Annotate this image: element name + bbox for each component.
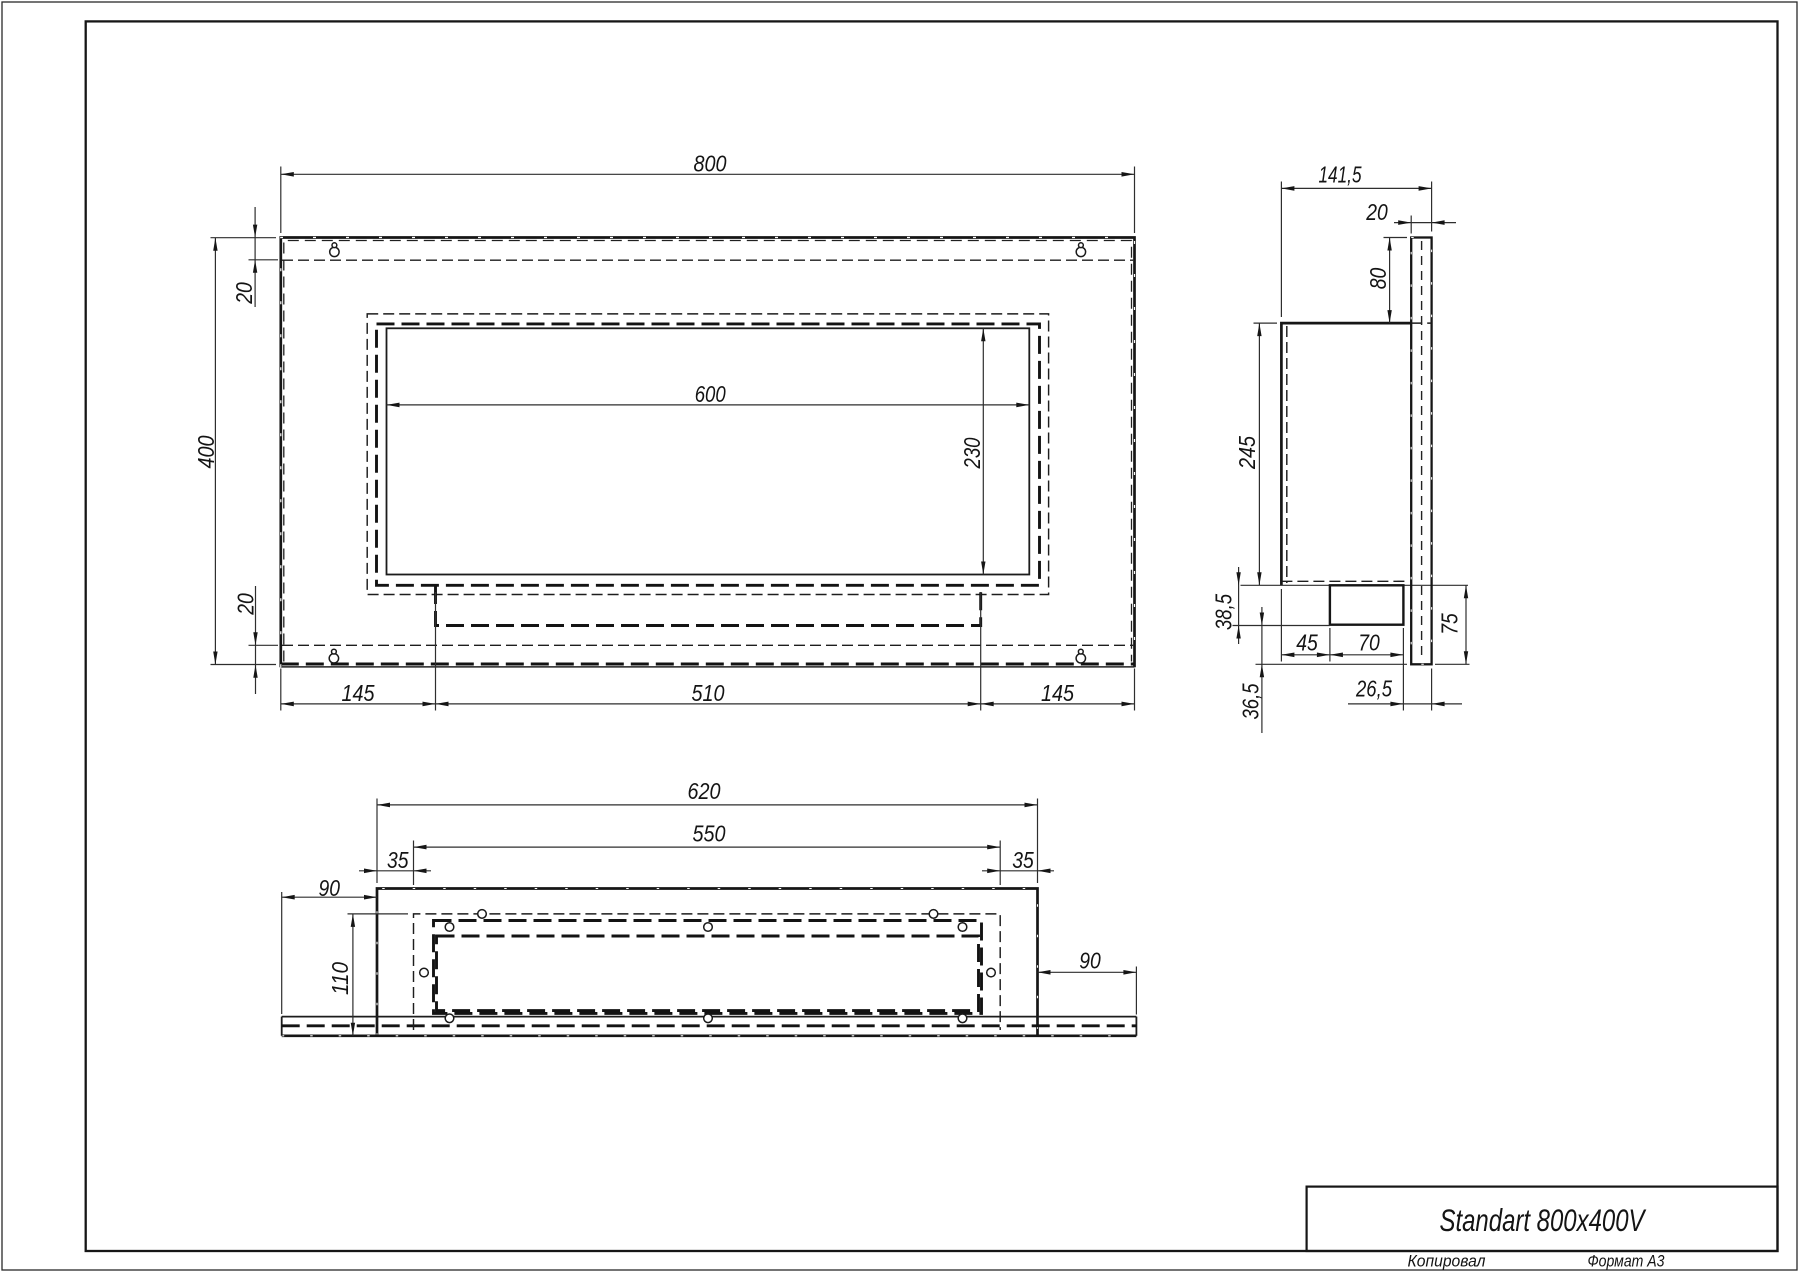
svg-text:90: 90 [318,875,340,901]
svg-text:620: 620 [688,778,721,804]
svg-text:Формат А3: Формат А3 [1588,1253,1666,1271]
svg-text:45: 45 [1296,630,1318,656]
svg-text:400: 400 [193,436,219,469]
svg-text:35: 35 [1012,847,1034,873]
svg-text:800: 800 [694,151,727,177]
svg-text:141,5: 141,5 [1319,161,1363,187]
svg-text:20: 20 [232,593,258,615]
svg-text:110: 110 [327,962,353,995]
svg-text:550: 550 [693,820,726,846]
svg-text:38,5: 38,5 [1211,593,1237,630]
svg-text:145: 145 [1041,680,1075,706]
svg-text:20: 20 [231,282,257,304]
svg-text:145: 145 [342,680,376,706]
svg-text:36,5: 36,5 [1238,683,1264,720]
svg-text:Копировал: Копировал [1408,1253,1486,1271]
svg-text:245: 245 [1234,435,1260,470]
svg-text:35: 35 [387,847,409,873]
svg-text:Standart 800x400V: Standart 800x400V [1440,1202,1647,1238]
svg-text:510: 510 [692,680,725,706]
svg-text:26,5: 26,5 [1355,675,1393,701]
svg-text:75: 75 [1437,612,1463,634]
svg-text:20: 20 [1365,199,1387,225]
svg-text:80: 80 [1365,268,1391,290]
svg-text:230: 230 [959,438,985,470]
svg-text:70: 70 [1358,630,1380,656]
svg-text:90: 90 [1079,947,1101,973]
svg-text:600: 600 [695,381,726,407]
